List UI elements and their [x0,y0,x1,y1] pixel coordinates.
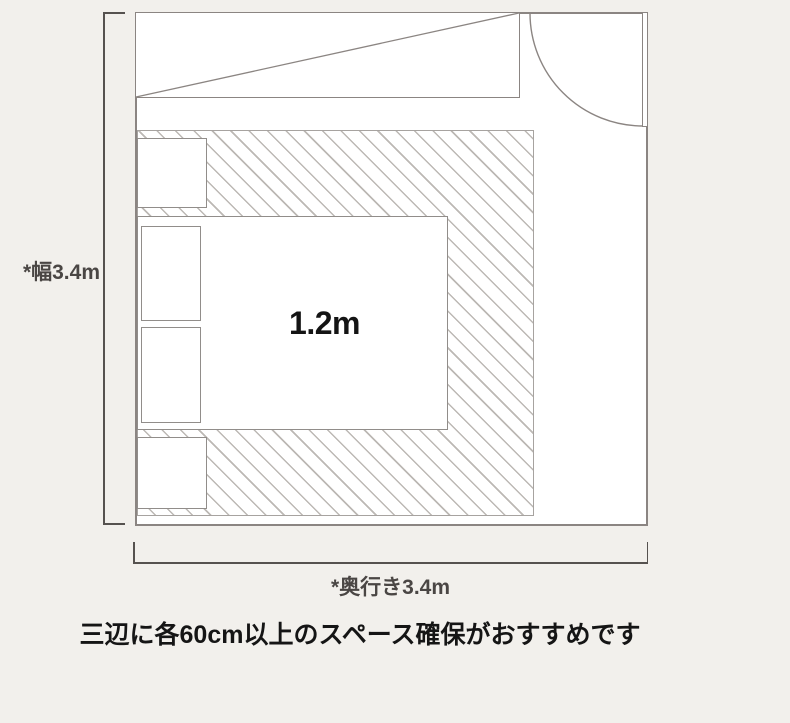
width-dimension-tick-bottom [103,523,125,525]
width-dimension-label: *幅3.4m [0,256,100,286]
width-dimension-line [103,12,105,524]
width-dimension-tick-top [103,12,125,14]
closet [135,12,520,98]
depth-dimension-label: *奥行き3.4m [133,571,648,601]
door-leaf [642,12,648,127]
nightstand-bottom [137,437,207,509]
recommendation-caption: 三辺に各60cm以上のスペース確保がおすすめです [0,615,720,651]
floor-plan-diagram: 1.2m *幅3.4m *奥行き3.4m 三辺に各60cm以上のスペース確保がお… [0,0,790,723]
pillow-top [141,226,201,321]
pillow-bottom [141,327,201,423]
bed-size-label: 1.2m [201,305,448,341]
depth-dimension-tick-left [133,542,135,563]
nightstand-top [137,138,207,208]
depth-dimension-tick-right [647,542,649,563]
depth-dimension-line [133,562,648,564]
